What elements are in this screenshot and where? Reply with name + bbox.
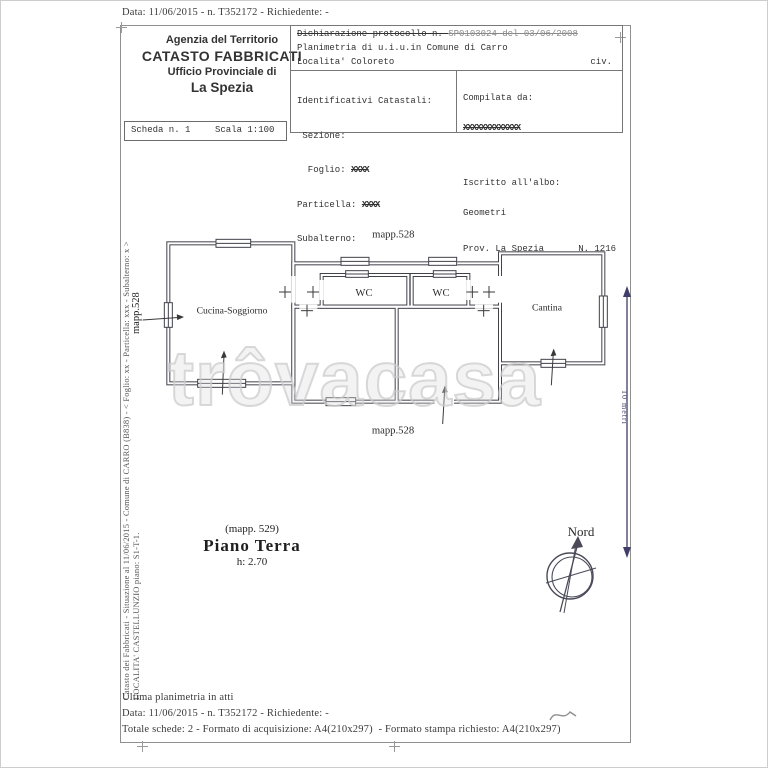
floor-height: h: 2.70 [167, 556, 337, 569]
foglio-row: Foglio: XXXX [297, 165, 432, 177]
particella-label: Particella: [297, 200, 362, 210]
room-label-cantina: Cantina [532, 303, 563, 314]
foglio-value: XXXX [351, 165, 369, 175]
compass-icon: Nord [533, 516, 623, 626]
mapp-bottom-label: mapp.528 [372, 425, 414, 436]
particella-row: Particella: XXXX [297, 200, 432, 212]
planimetria-line: Planimetria di u.i.u.in Comune di Carro [297, 43, 508, 53]
office-line3: Ufficio Provinciale di [138, 65, 306, 80]
protocol-value: SP0103024 del 03/06/2008 [448, 29, 578, 39]
room-label-wc1: WC [355, 288, 372, 299]
scale-bar-label: 10 metri [620, 390, 629, 452]
left-margin-line1: Catasto dei Fabbricati - Situazione al 1… [121, 140, 131, 700]
office-line4: La Spezia [138, 80, 306, 95]
room-label-wc2: WC [432, 288, 449, 299]
footer-line2: Data: 11/06/2015 - n. T352172 - Richiede… [122, 708, 329, 719]
registration-tick-icon [137, 741, 148, 752]
room-label-cucina: Cucina-Soggiorno [197, 305, 268, 316]
plan-walls-outer [168, 243, 603, 401]
door-tick-marks [279, 286, 495, 317]
left-margin-text: Catasto dei Fabbricati - Situazione al 1… [121, 140, 141, 700]
scheda-box: Scheda n. 1 Scala 1:100 [124, 121, 287, 141]
plan-walls-core [168, 243, 603, 401]
door-arrows [143, 315, 556, 424]
declaration-column-divider [456, 70, 457, 132]
declaration-box: Dichiarazione protocollo n. SP0103024 de… [290, 25, 623, 133]
particella-value: XXXX [362, 200, 380, 210]
mapp-top-label: mapp.528 [372, 229, 414, 240]
top-data-line: Data: 11/06/2015 - n. T352172 - Richiede… [122, 7, 329, 18]
foglio-label: Foglio: [297, 165, 351, 175]
compilata-label: Compilata da: [463, 93, 616, 103]
civ-label: civ. [590, 57, 612, 67]
protocol-line: Dichiarazione protocollo n. SP0103024 de… [297, 29, 578, 39]
plan-labels: mapp.528 Cucina-Soggiorno WC WC Cantina … [197, 229, 563, 436]
floor-plan-drawing: mapp.528 Cucina-Soggiorno WC WC Cantina … [140, 220, 640, 440]
compass-north-label: Nord [568, 524, 595, 539]
mapp-529-note: (mapp. 529) [167, 522, 337, 536]
sezione-row: Sezione: [297, 131, 432, 143]
office-line2: CATASTO FABBRICATI [138, 48, 306, 65]
compilata-name: XXXXXXXXXXXXX [463, 123, 616, 133]
floor-title: Piano Terra [167, 536, 337, 556]
identificativi-title: Identificativi Catastali: [297, 96, 432, 108]
localita-line: Localita' Coloreto [297, 57, 394, 67]
registration-tick-icon [389, 741, 400, 752]
spacer [463, 153, 616, 158]
protocol-label: Dichiarazione protocollo n. [297, 29, 448, 39]
office-line1: Agenzia del Territorio [138, 33, 306, 48]
footer-line1: Ultima planimetria in atti [122, 692, 234, 703]
floor-info-block: (mapp. 529) Piano Terra h: 2.70 [167, 522, 337, 569]
footer-line3: Totale schede: 2 - Formato di acquisizio… [122, 724, 561, 735]
scanned-cadastral-document: Data: 11/06/2015 - n. T352172 - Richiede… [0, 0, 768, 768]
scala-value: Scala 1:100 [215, 125, 274, 135]
signature-squiggle-icon [548, 706, 578, 726]
registration-tick-icon [116, 22, 127, 33]
albo-label: Iscritto all'albo: [463, 178, 616, 188]
office-header: Agenzia del Territorio CATASTO FABBRICAT… [138, 33, 306, 95]
scheda-number: Scheda n. 1 [131, 125, 190, 135]
albo-value: Geometri [463, 208, 616, 218]
